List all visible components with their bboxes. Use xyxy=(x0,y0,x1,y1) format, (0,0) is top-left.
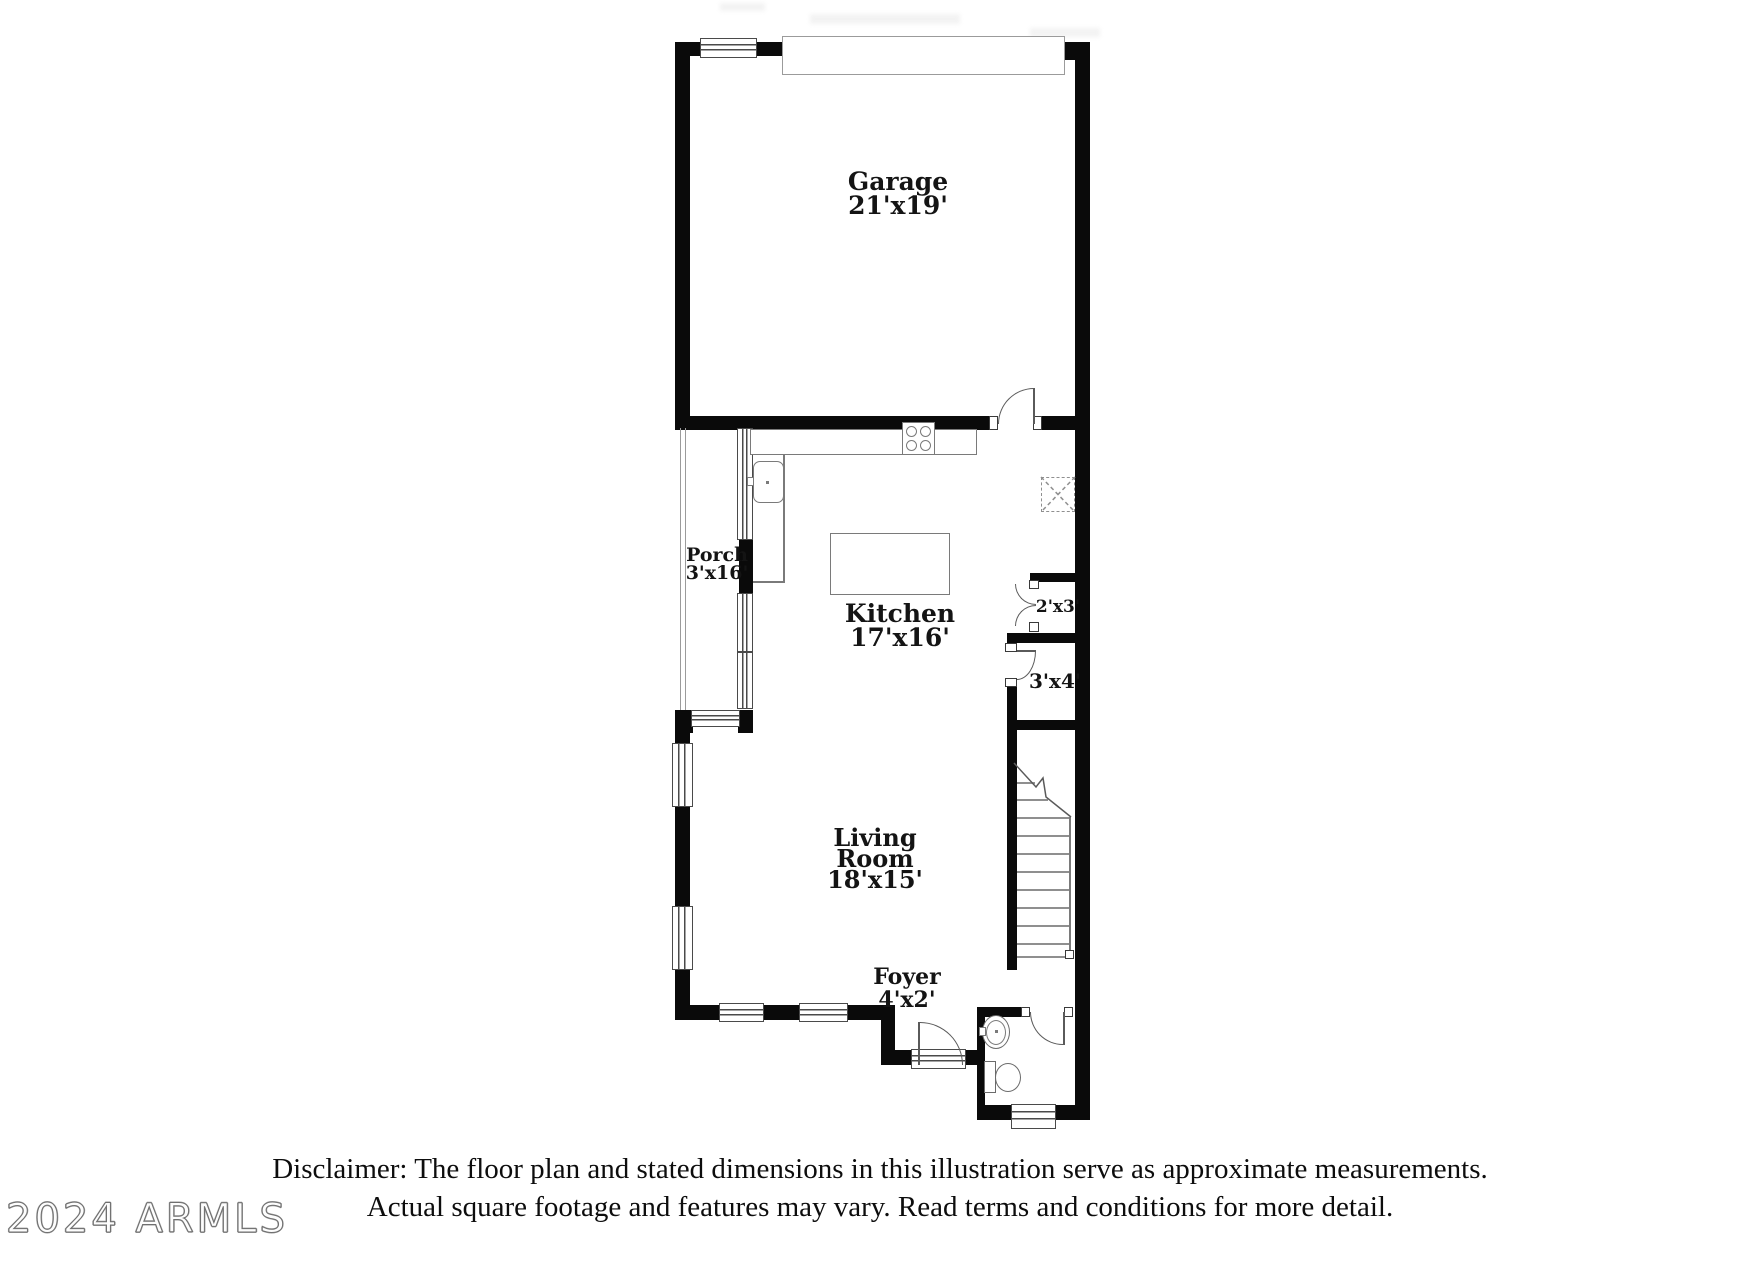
kitchen-island xyxy=(830,533,950,595)
porch-south-window xyxy=(691,710,740,727)
stair-step xyxy=(1017,782,1035,784)
right-exterior-wall xyxy=(1075,42,1090,1120)
stair-direction-break-line xyxy=(1014,763,1071,817)
porch-window-middle xyxy=(737,593,753,652)
stair-step xyxy=(1017,799,1048,801)
stair-newel-post xyxy=(1065,950,1074,959)
kitchen-label: Kitchen 17'x16' xyxy=(800,602,1000,650)
garage-entry-door-arc xyxy=(998,388,1034,424)
living-room-west-window-upper xyxy=(672,743,693,807)
scan-artifact xyxy=(720,3,765,11)
stair-step xyxy=(1017,835,1070,837)
bathroom-door-jamb-west xyxy=(1021,1007,1030,1017)
garage-door xyxy=(782,36,1065,75)
garage-entry-door-jamb-west xyxy=(989,416,998,430)
understairs-closet-dims: 3'x4' xyxy=(1028,671,1082,691)
living-room-west-window-lower xyxy=(672,906,693,970)
floor-plan: Garage 21'x19' Kitchen 17'x16' Porch 3'x… xyxy=(0,0,1760,1280)
living-room-south-wall-b xyxy=(761,1005,802,1020)
kitchen-label-dims: 17'x16' xyxy=(800,626,1000,650)
porch-label: Porch 3'x16' xyxy=(667,546,767,582)
hall-closet-door-arc-lower xyxy=(1015,605,1036,626)
armls-watermark: 2024 ARMLS xyxy=(6,1196,288,1242)
bathroom-door-arc xyxy=(1030,1012,1063,1045)
understairs-closet-label: 3'x4' xyxy=(1028,671,1082,691)
garage-label-dims: 21'x19' xyxy=(798,194,998,218)
toilet-bowl xyxy=(995,1063,1021,1092)
stove-burner xyxy=(920,440,931,451)
porch-label-dims: 3'x16' xyxy=(667,564,767,582)
garage-bottom-wall-east xyxy=(1040,416,1075,430)
bathroom-door-leaf xyxy=(1063,1012,1065,1045)
stair-step xyxy=(1017,871,1070,873)
hall-closet-door-arc-upper xyxy=(1015,584,1036,605)
living-room-south-window-east xyxy=(799,1003,848,1022)
stair-step xyxy=(1017,925,1070,927)
stove-burner xyxy=(906,426,917,437)
right-wall-top-corner xyxy=(1065,42,1075,60)
understairs-closet-west-wall xyxy=(1007,687,1017,720)
foyer-label-name: Foyer xyxy=(847,966,967,989)
stove-burner xyxy=(906,440,917,451)
living-room-south-wall-a xyxy=(675,1005,722,1020)
understairs-closet-jamb-north xyxy=(1005,643,1017,652)
garage-bottom-wall-west xyxy=(675,416,991,430)
stair-step xyxy=(1017,817,1070,819)
stairwell-west-wall xyxy=(1007,730,1017,970)
bathroom-sink-drain xyxy=(995,1030,998,1033)
understairs-closet-north-wall xyxy=(1007,633,1075,643)
foyer-label-dims: 4'x2' xyxy=(847,989,967,1012)
stair-step xyxy=(1017,907,1070,909)
hall-closet-dims: 2'x3' xyxy=(1034,599,1082,616)
stairs-north-wall xyxy=(1007,720,1075,730)
kitchen-sink-drain xyxy=(766,481,769,484)
stair-railing xyxy=(1069,817,1071,956)
bathroom-window xyxy=(1011,1104,1056,1129)
disclaimer-line1: Disclaimer: The floor plan and stated di… xyxy=(0,1150,1760,1188)
bathroom-door-jamb-east xyxy=(1064,1007,1073,1017)
scan-artifact xyxy=(810,14,960,24)
garage-window xyxy=(700,38,757,58)
living-room-label: Living Room 18'x15' xyxy=(775,827,975,890)
living-room-label-dims: 18'x15' xyxy=(775,869,975,890)
bathroom-faucet xyxy=(979,1027,986,1036)
garage-left-wall xyxy=(675,42,690,428)
foyer-jog-wall xyxy=(881,1005,895,1065)
stair-step xyxy=(1017,853,1070,855)
garage-label: Garage 21'x19' xyxy=(798,170,998,218)
living-room-south-window-west xyxy=(719,1003,764,1022)
stair-step xyxy=(1017,943,1070,945)
porch-window-lower xyxy=(737,652,753,709)
hall-closet-label: 2'x3' xyxy=(1034,599,1082,616)
front-door-arc xyxy=(920,1022,963,1065)
kitchen-faucet xyxy=(747,477,754,486)
stair-step xyxy=(1017,889,1070,891)
mechanical-area-box xyxy=(1041,477,1075,512)
foyer-label: Foyer 4'x2' xyxy=(847,966,967,1012)
porch-post-southeast xyxy=(738,710,753,733)
stair-step xyxy=(1017,956,1070,958)
kitchen-counter xyxy=(750,429,977,455)
stove-burner xyxy=(920,426,931,437)
understairs-closet-jamb-south xyxy=(1005,678,1017,687)
